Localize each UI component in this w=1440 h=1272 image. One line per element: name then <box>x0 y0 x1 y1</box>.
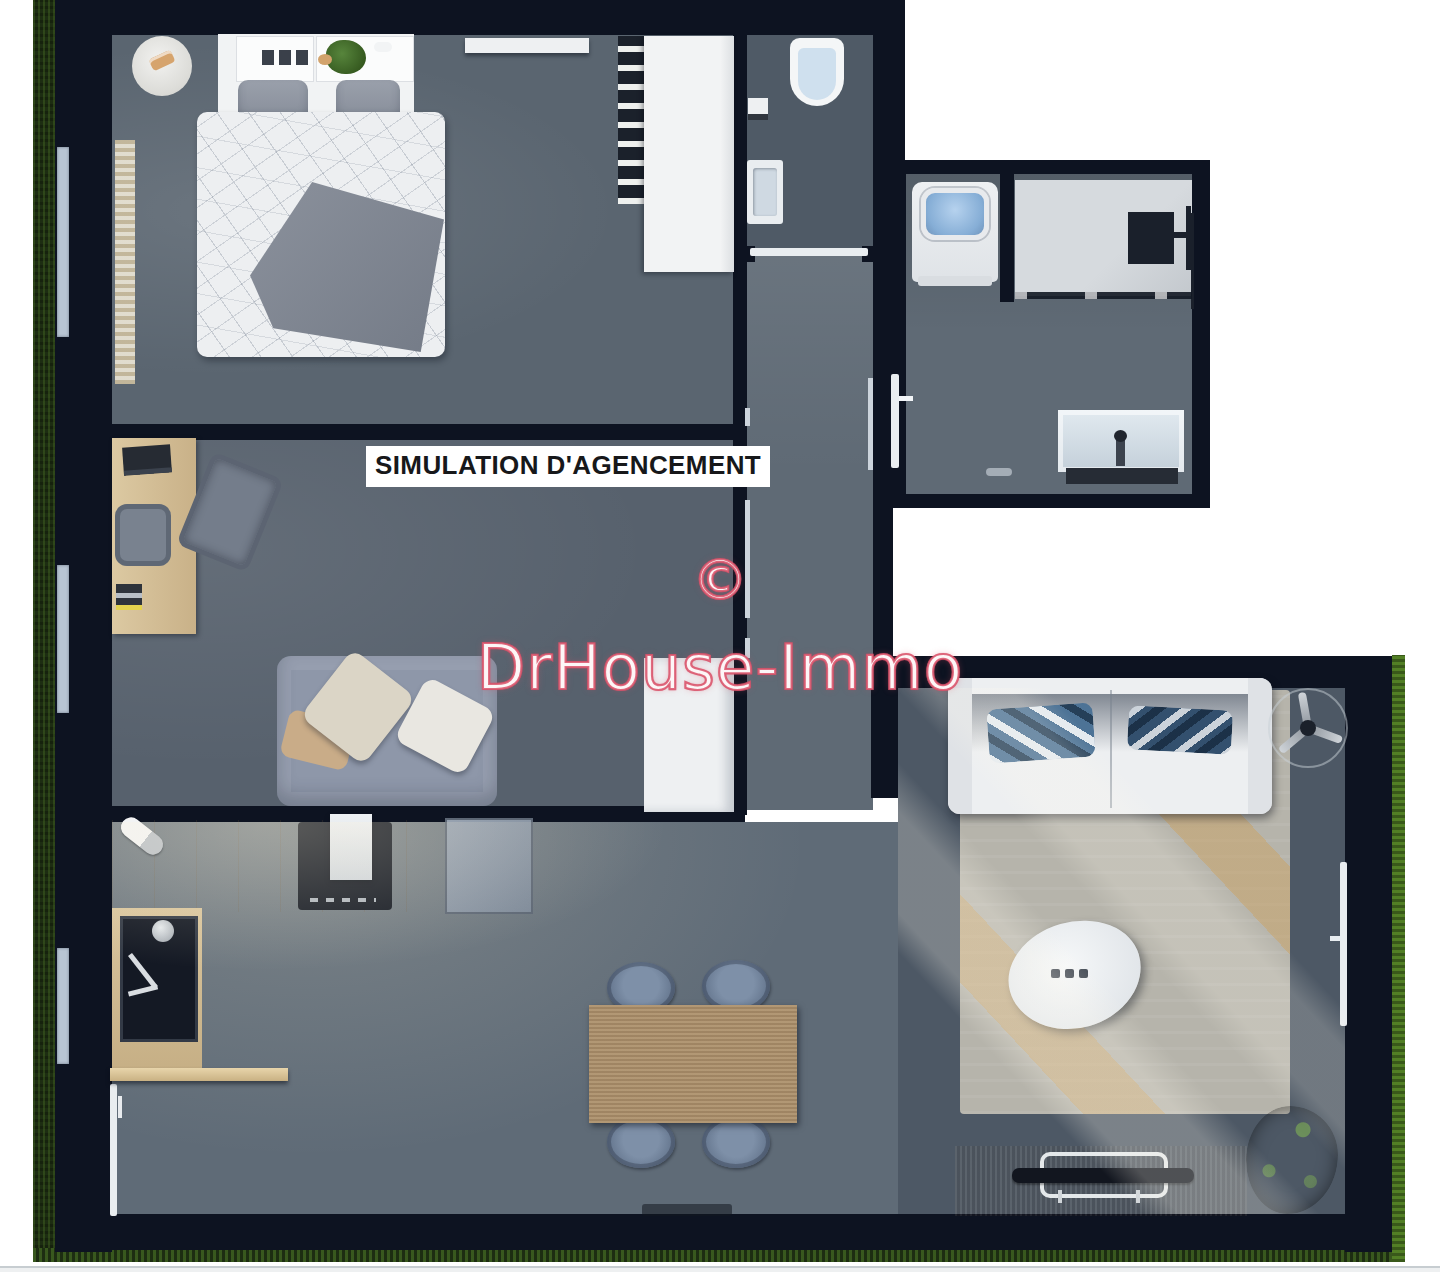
bedside-lamp <box>374 42 392 52</box>
kitchen-open-door <box>110 1084 117 1216</box>
door-frame-trim <box>745 638 750 658</box>
wall-top <box>75 0 905 35</box>
floor-plan-render: SIMULATION D'AGENCEMENT © DrHouse-Immo <box>0 0 1440 1272</box>
wall-shower-divider <box>1000 172 1014 302</box>
tv-leg <box>1058 1190 1062 1203</box>
bathroom-door <box>891 374 899 468</box>
bath-mat <box>986 468 1012 476</box>
radiator <box>115 140 135 384</box>
door-handle <box>118 1096 122 1118</box>
window-kitchen <box>57 948 69 1064</box>
washing-machine-tray <box>918 276 992 286</box>
tv-leg <box>1136 1190 1140 1203</box>
wall-bathroom-top <box>893 160 1210 174</box>
toilet-paper-holder <box>748 98 768 120</box>
vanity-base <box>1066 468 1178 484</box>
clothes-rack <box>618 36 646 204</box>
flat-tv <box>1012 1168 1194 1183</box>
faucet-icon <box>152 920 174 942</box>
desk-chair <box>115 504 171 566</box>
wall-bedroom-office <box>112 424 745 440</box>
sofa-armrest <box>1248 678 1272 814</box>
faucet-head <box>1114 430 1127 442</box>
ground-baseline <box>0 1262 1440 1272</box>
wall-bathroom-right <box>1192 160 1210 508</box>
door-handle <box>899 396 913 401</box>
book-stack <box>116 584 142 610</box>
patterned-pillow <box>986 702 1096 763</box>
cooktop-knobs <box>310 898 376 902</box>
door-frame-trim <box>745 408 750 426</box>
toilet-seat <box>798 48 836 100</box>
wc-door <box>750 248 868 256</box>
kitchen-towel <box>330 814 372 880</box>
wardrobe <box>644 36 734 272</box>
wall-bottom <box>55 1214 1345 1250</box>
plant-dish <box>318 54 332 65</box>
hand-basin-bowl <box>753 168 777 216</box>
cupboard <box>644 658 734 812</box>
plant-icon <box>326 40 366 74</box>
doormat <box>642 1204 732 1216</box>
wall-bathroom-bottom <box>893 494 1210 508</box>
wall-living-right <box>1345 656 1392 1252</box>
dining-chair <box>607 1116 675 1168</box>
grass-strip-right <box>1392 655 1405 1262</box>
kitchen-shelf <box>110 1068 288 1081</box>
appliance-cabinet <box>445 818 533 914</box>
window-bedroom <box>57 147 69 337</box>
kitchen-counter <box>112 820 445 912</box>
simulation-label: SIMULATION D'AGENCEMENT <box>366 446 770 487</box>
dining-table <box>589 1005 797 1123</box>
door-frame-trim <box>745 500 750 618</box>
wall-hall-right <box>873 250 893 658</box>
patterned-pillow <box>1127 705 1233 754</box>
fan-hub <box>1300 720 1316 736</box>
table-detail-dots <box>1051 969 1097 979</box>
shower-rail <box>1186 206 1191 270</box>
terrace-door <box>1340 862 1347 1026</box>
door-handle <box>1330 936 1342 941</box>
door-frame-trim <box>868 378 873 470</box>
wall-shelf <box>465 38 589 53</box>
hallway-floor <box>747 250 873 810</box>
sofa-seat-divider <box>1110 690 1112 808</box>
shower-glass-panel <box>1015 292 1192 299</box>
drawer-handles <box>262 50 312 66</box>
washing-machine-window <box>921 188 989 240</box>
dining-chair <box>702 1116 770 1168</box>
laptop <box>122 444 172 475</box>
window-office <box>57 565 69 713</box>
sofa-armrest <box>948 678 972 814</box>
shower-head <box>1128 212 1174 264</box>
